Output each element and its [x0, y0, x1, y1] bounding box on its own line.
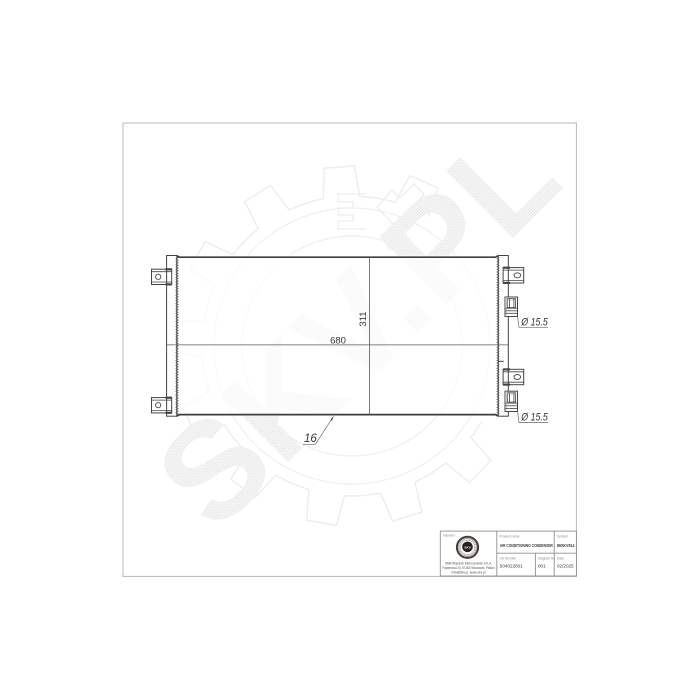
svg-text:Diagram No.: Diagram No.: [538, 557, 556, 561]
svg-text:SMB Wojciech Michorzewski S.K.: SMB Wojciech Michorzewski S.K.A.: [445, 561, 492, 565]
svg-text:001: 001: [538, 564, 546, 569]
svg-text:Date: Date: [557, 557, 564, 561]
svg-text:SKV: SKV: [464, 545, 471, 549]
svg-text:OE Number: OE Number: [500, 557, 518, 561]
svg-text:86SKV914: 86SKV914: [557, 543, 575, 548]
svg-text:AIR CONDITIONING CONDENSER: AIR CONDITIONING CONDENSER: [500, 543, 553, 548]
svg-text:311: 311: [358, 311, 369, 326]
svg-text:Ø 15.5: Ø 15.5: [520, 317, 548, 329]
svg-text:Importer: Importer: [443, 534, 456, 538]
svg-text:Ø 15.5: Ø 15.5: [520, 412, 548, 424]
svg-text:info@skv.pl, www.skv.pl: info@skv.pl, www.skv.pl: [452, 570, 486, 574]
svg-text:02/2025: 02/2025: [557, 564, 574, 569]
svg-text:680: 680: [330, 335, 346, 346]
svg-text:16: 16: [304, 433, 317, 445]
svg-text:Symbol: Symbol: [557, 535, 568, 539]
svg-text:504022601: 504022601: [500, 564, 523, 569]
svg-text:Product name: Product name: [500, 535, 520, 539]
svg-text:Papiernicza 25, 87-800 Wloclaw: Papiernicza 25, 87-800 Wloclawek, Poland: [443, 566, 495, 570]
